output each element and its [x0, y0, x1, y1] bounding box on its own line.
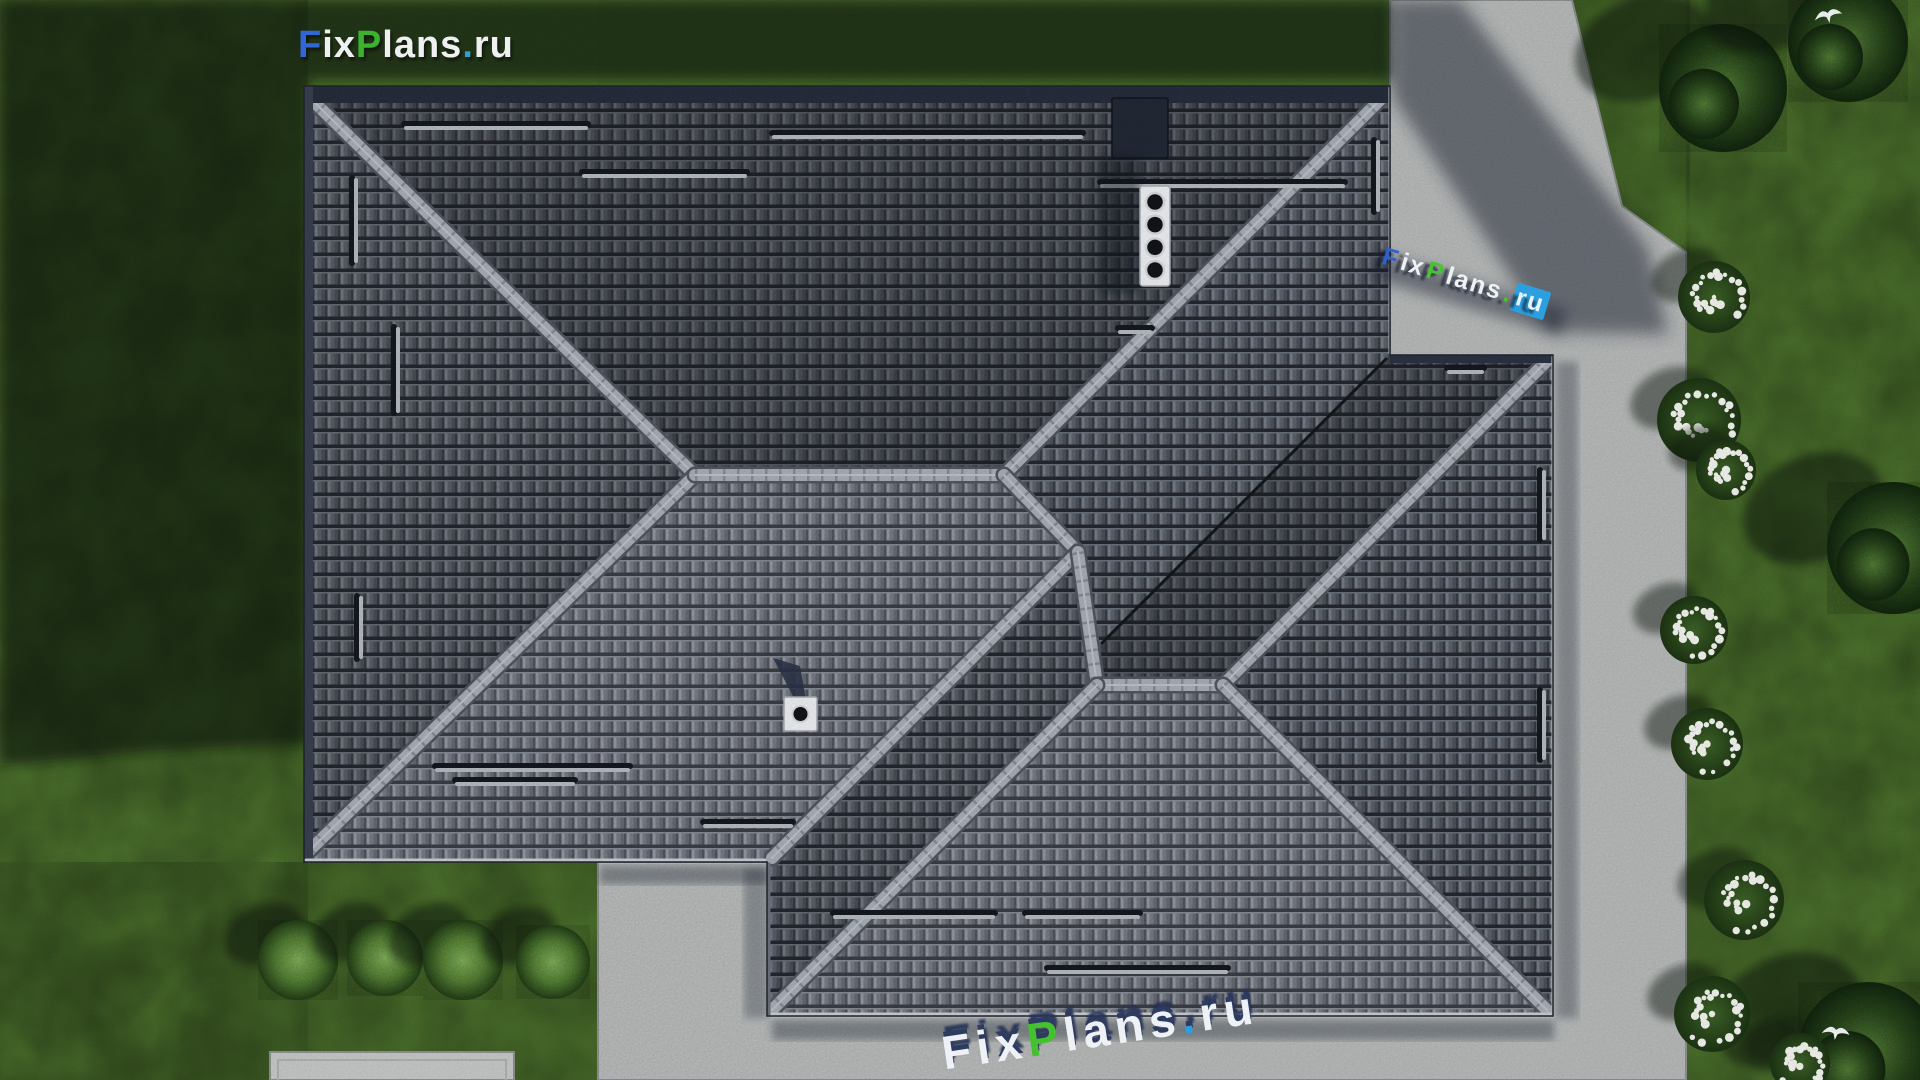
logo-letter: lans: [382, 24, 462, 67]
scene-canvas: [0, 0, 1920, 1080]
render-stage: FixPlans.ru FixPlans.ru FixPlans.ru: [0, 0, 1920, 1080]
logo-letter: F: [298, 24, 322, 67]
logo-letter: P: [356, 24, 382, 67]
ground-watermark-letter: ix: [972, 1013, 1031, 1075]
logo-letter: ix: [322, 24, 356, 67]
fixplans-logo: FixPlans.ru: [298, 24, 514, 67]
logo-letter: .: [462, 24, 474, 67]
logo-letter: ru: [474, 24, 514, 67]
film-grain-overlay: [0, 0, 1920, 1080]
ground-watermark-letter: ru: [1196, 979, 1262, 1042]
